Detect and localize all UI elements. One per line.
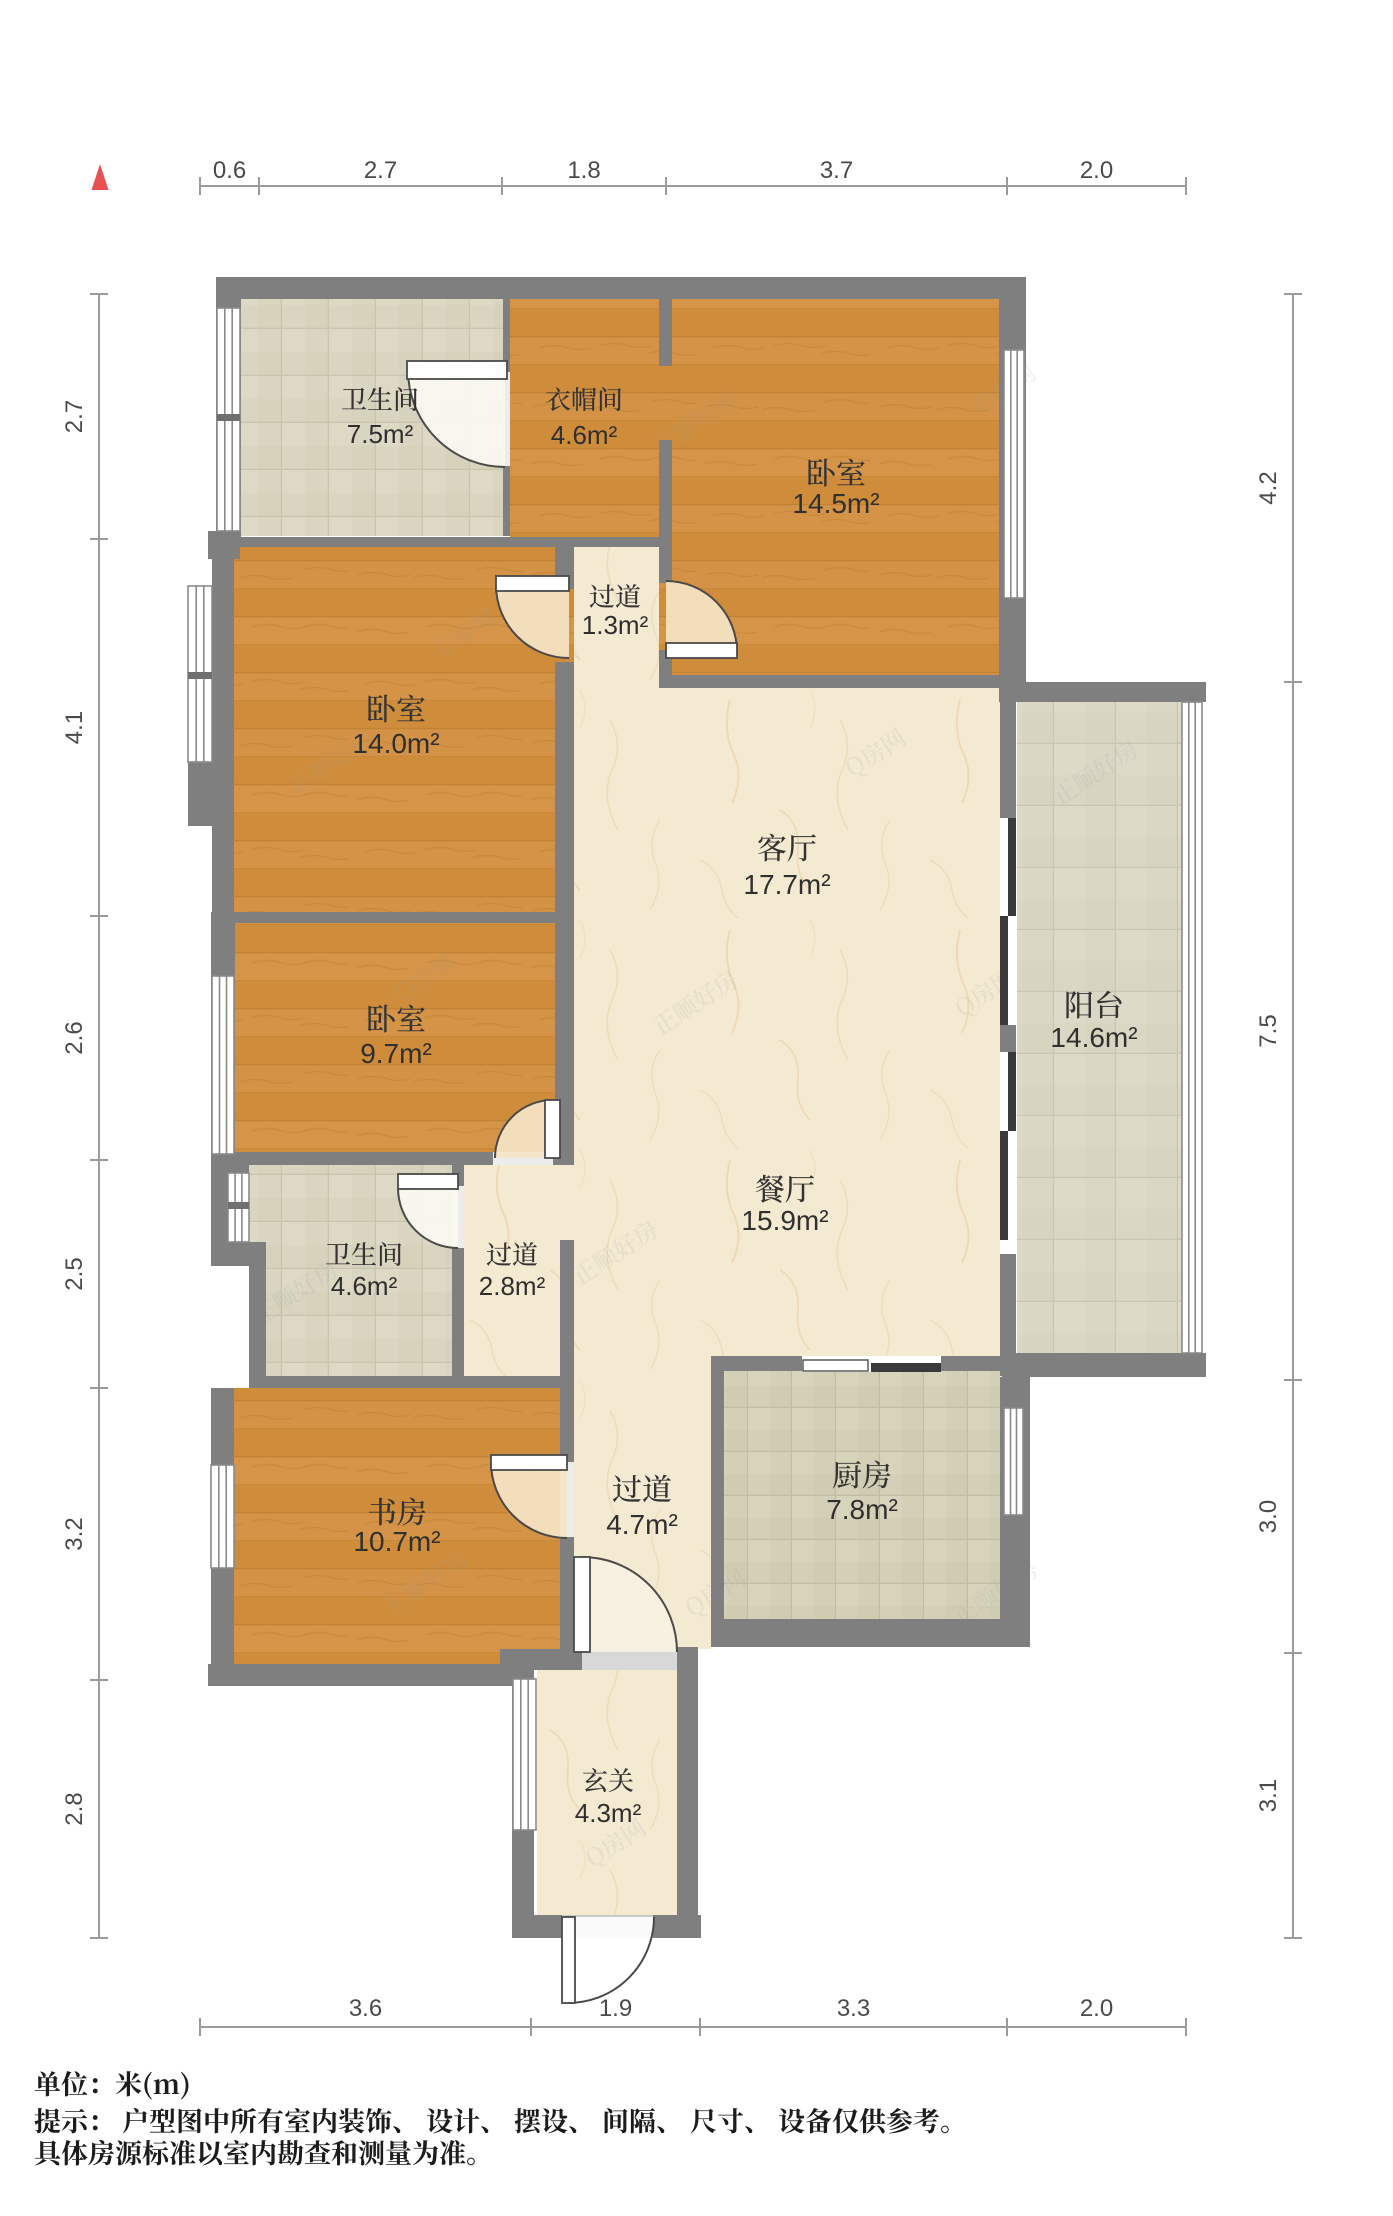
svg-text:4.6m²: 4.6m² [331, 1271, 398, 1301]
svg-text:10.7m²: 10.7m² [353, 1526, 440, 1557]
svg-text:2.0: 2.0 [1080, 157, 1113, 184]
svg-text:3.1: 3.1 [1255, 1779, 1282, 1812]
svg-text:4.6m²: 4.6m² [551, 420, 618, 450]
svg-text:3.7: 3.7 [820, 157, 853, 184]
svg-text:1.3m²: 1.3m² [582, 610, 649, 640]
svg-text:2.7: 2.7 [61, 400, 88, 433]
svg-text:7.5m²: 7.5m² [347, 419, 414, 449]
svg-text:4.3m²: 4.3m² [575, 1798, 642, 1828]
svg-text:14.6m²: 14.6m² [1050, 1022, 1137, 1053]
svg-text:3.6: 3.6 [349, 1995, 382, 2022]
svg-text:4.7m²: 4.7m² [606, 1509, 678, 1540]
svg-text:2.7: 2.7 [364, 157, 397, 184]
svg-text:7.5: 7.5 [1255, 1014, 1282, 1047]
svg-text:2.8m²: 2.8m² [479, 1271, 546, 1301]
svg-text:2.5: 2.5 [61, 1257, 88, 1290]
svg-text:7.8m²: 7.8m² [826, 1494, 898, 1525]
svg-text:4.2: 4.2 [1255, 471, 1282, 504]
svg-text:2.6: 2.6 [61, 1021, 88, 1054]
svg-text:3.3: 3.3 [837, 1995, 870, 2022]
svg-text:9.7m²: 9.7m² [360, 1038, 432, 1069]
svg-text:17.7m²: 17.7m² [743, 869, 830, 900]
svg-text:14.5m²: 14.5m² [792, 488, 879, 519]
svg-text:14.0m²: 14.0m² [352, 728, 439, 759]
svg-text:3.2: 3.2 [61, 1517, 88, 1550]
svg-text:1.8: 1.8 [567, 157, 600, 184]
svg-text:2.8: 2.8 [61, 1792, 88, 1825]
svg-text:4.1: 4.1 [61, 711, 88, 744]
svg-text:1.9: 1.9 [599, 1995, 632, 2022]
svg-text:2.0: 2.0 [1080, 1995, 1113, 2022]
svg-text:15.9m²: 15.9m² [741, 1205, 828, 1236]
svg-text:3.0: 3.0 [1255, 1500, 1282, 1533]
svg-text:0.6: 0.6 [213, 157, 246, 184]
